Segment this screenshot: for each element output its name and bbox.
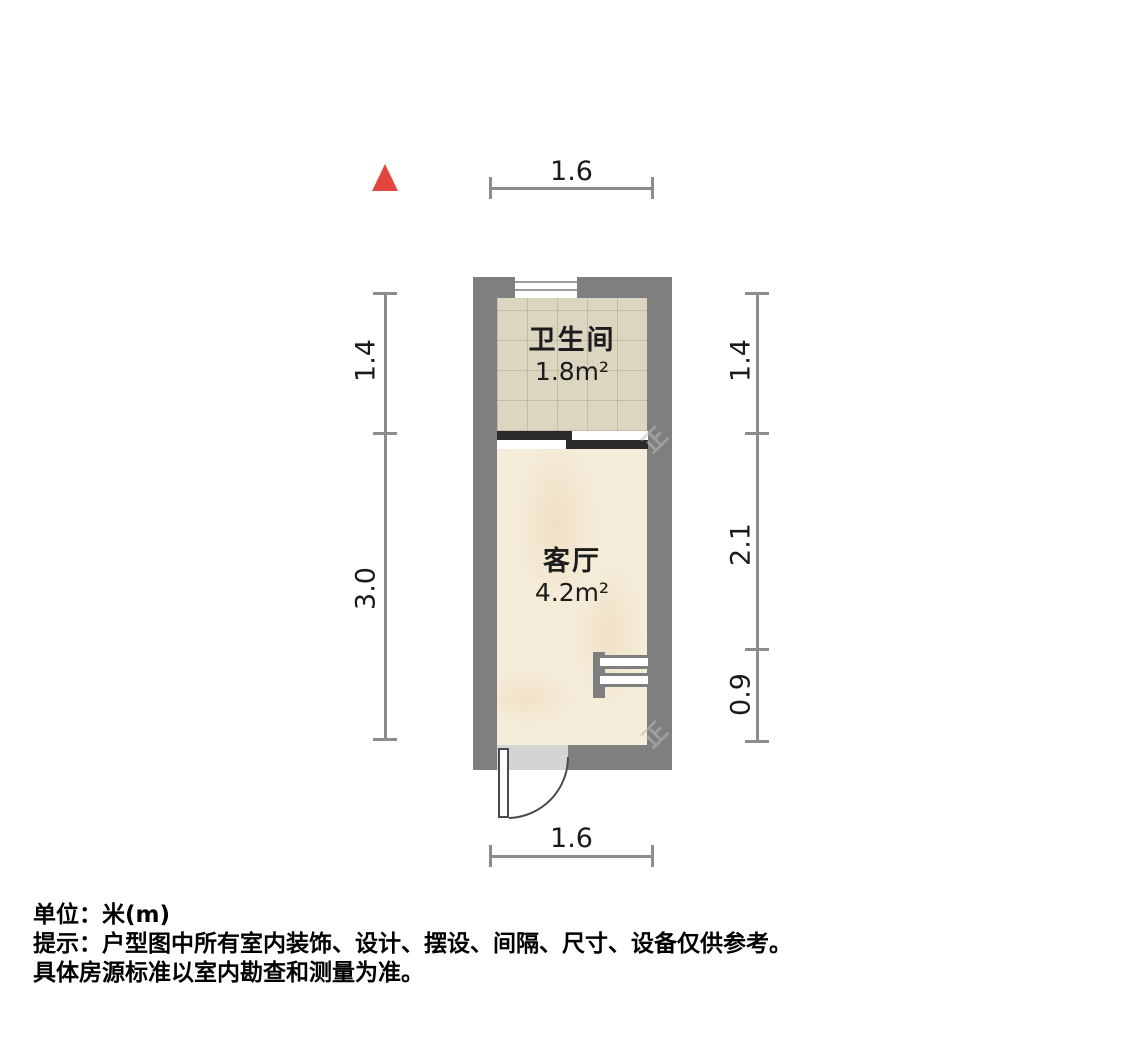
dim-right-upper-label: 1.4	[728, 331, 755, 391]
sliding-door-panel-left	[497, 431, 572, 440]
dim-right-middle-label: 2.1	[728, 515, 755, 575]
dim-left-line	[384, 293, 387, 740]
dim-right-tick-1	[745, 292, 769, 295]
floor-plan-page: 1.6 1.6 1.4 3.0 1.4 2.1 0.9 卫生间 1.8m	[0, 0, 1144, 1047]
dim-top-tick-right	[651, 177, 654, 199]
footer-notes: 单位：米(m) 提示：户型图中所有室内装饰、设计、摆设、间隔、尺寸、设备仅供参考…	[33, 901, 1113, 988]
dim-bottom-tick-left	[489, 845, 492, 867]
window-icon	[515, 274, 577, 298]
radiator-fin-top	[600, 655, 648, 669]
dim-top-line	[490, 187, 653, 190]
sliding-door-track-left	[497, 440, 566, 449]
bathroom-area-label: 1.8m²	[497, 359, 647, 385]
dim-right-tick-3	[745, 648, 769, 651]
dim-left-upper-label: 1.4	[353, 331, 380, 391]
footer-unit-line: 单位：米(m)	[33, 901, 1113, 930]
dim-left-tick-2	[373, 432, 397, 435]
dim-right-tick-2	[745, 432, 769, 435]
dim-left-tick-3	[373, 738, 397, 741]
door-swing-arc	[497, 745, 597, 845]
dim-top-tick-left	[489, 177, 492, 199]
dim-bottom-tick-right	[651, 845, 654, 867]
sliding-door-panel-right	[566, 440, 648, 449]
living-area-label: 4.2m²	[497, 580, 647, 606]
dim-right-tick-4	[745, 740, 769, 743]
dim-top-label: 1.6	[490, 158, 653, 185]
footer-tip-line-1: 提示：户型图中所有室内装饰、设计、摆设、间隔、尺寸、设备仅供参考。	[33, 930, 1113, 959]
dim-bottom-line	[490, 855, 653, 858]
dim-left-tick-1	[373, 292, 397, 295]
north-arrow-icon	[372, 164, 398, 191]
footer-tip-line-2: 具体房源标准以室内勘查和测量为准。	[33, 959, 1113, 988]
dim-left-lower-label: 3.0	[353, 559, 380, 619]
living-name-label: 客厅	[497, 548, 647, 576]
dim-right-lower-label: 0.9	[728, 665, 755, 725]
radiator-fin-bottom	[600, 673, 648, 687]
door-panel	[498, 748, 509, 818]
bathroom-name-label: 卫生间	[497, 327, 647, 355]
